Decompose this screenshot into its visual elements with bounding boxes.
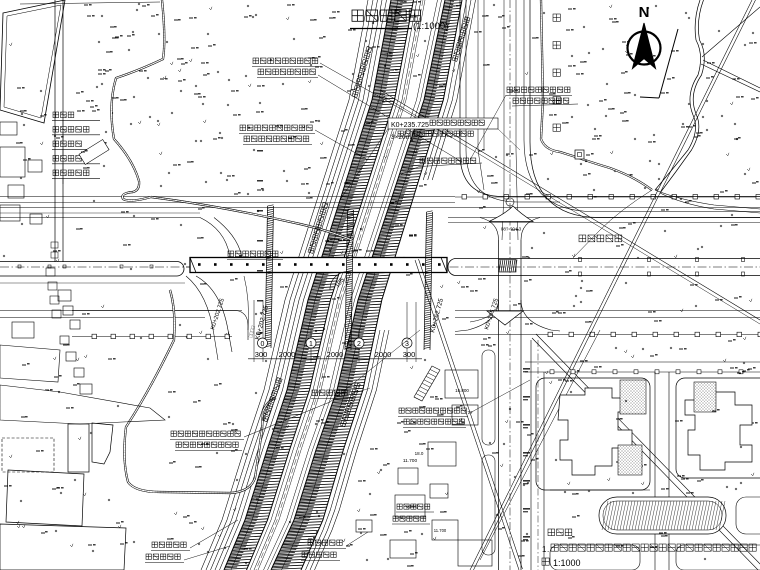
svg-text:1: 1 <box>309 341 313 348</box>
svg-text:11.700: 11.700 <box>403 458 418 464</box>
svg-text:18.0: 18.0 <box>415 451 424 456</box>
svg-text:2000: 2000 <box>279 350 296 359</box>
svg-text:.: . <box>547 545 549 554</box>
svg-text:3×20m: 3×20m <box>391 134 411 141</box>
svg-text:300: 300 <box>403 350 416 359</box>
svg-text:N: N <box>639 4 650 21</box>
svg-text:3: 3 <box>405 341 409 348</box>
svg-text:15.800: 15.800 <box>455 388 469 393</box>
svg-text:(1:1000): (1:1000) <box>413 21 448 32</box>
svg-text:1:1000: 1:1000 <box>553 558 581 568</box>
svg-text:2000: 2000 <box>375 350 392 359</box>
svg-text:??: ?? <box>467 410 473 415</box>
svg-text:2: 2 <box>357 341 361 348</box>
svg-text:0: 0 <box>261 341 265 348</box>
svg-text:2000: 2000 <box>327 350 344 359</box>
svg-text:08?-?04.3: 08?-?04.3 <box>501 227 522 232</box>
svg-text:K0+235.725: K0+235.725 <box>391 122 429 129</box>
svg-text:300: 300 <box>255 350 268 359</box>
svg-text:11.700: 11.700 <box>434 528 447 533</box>
